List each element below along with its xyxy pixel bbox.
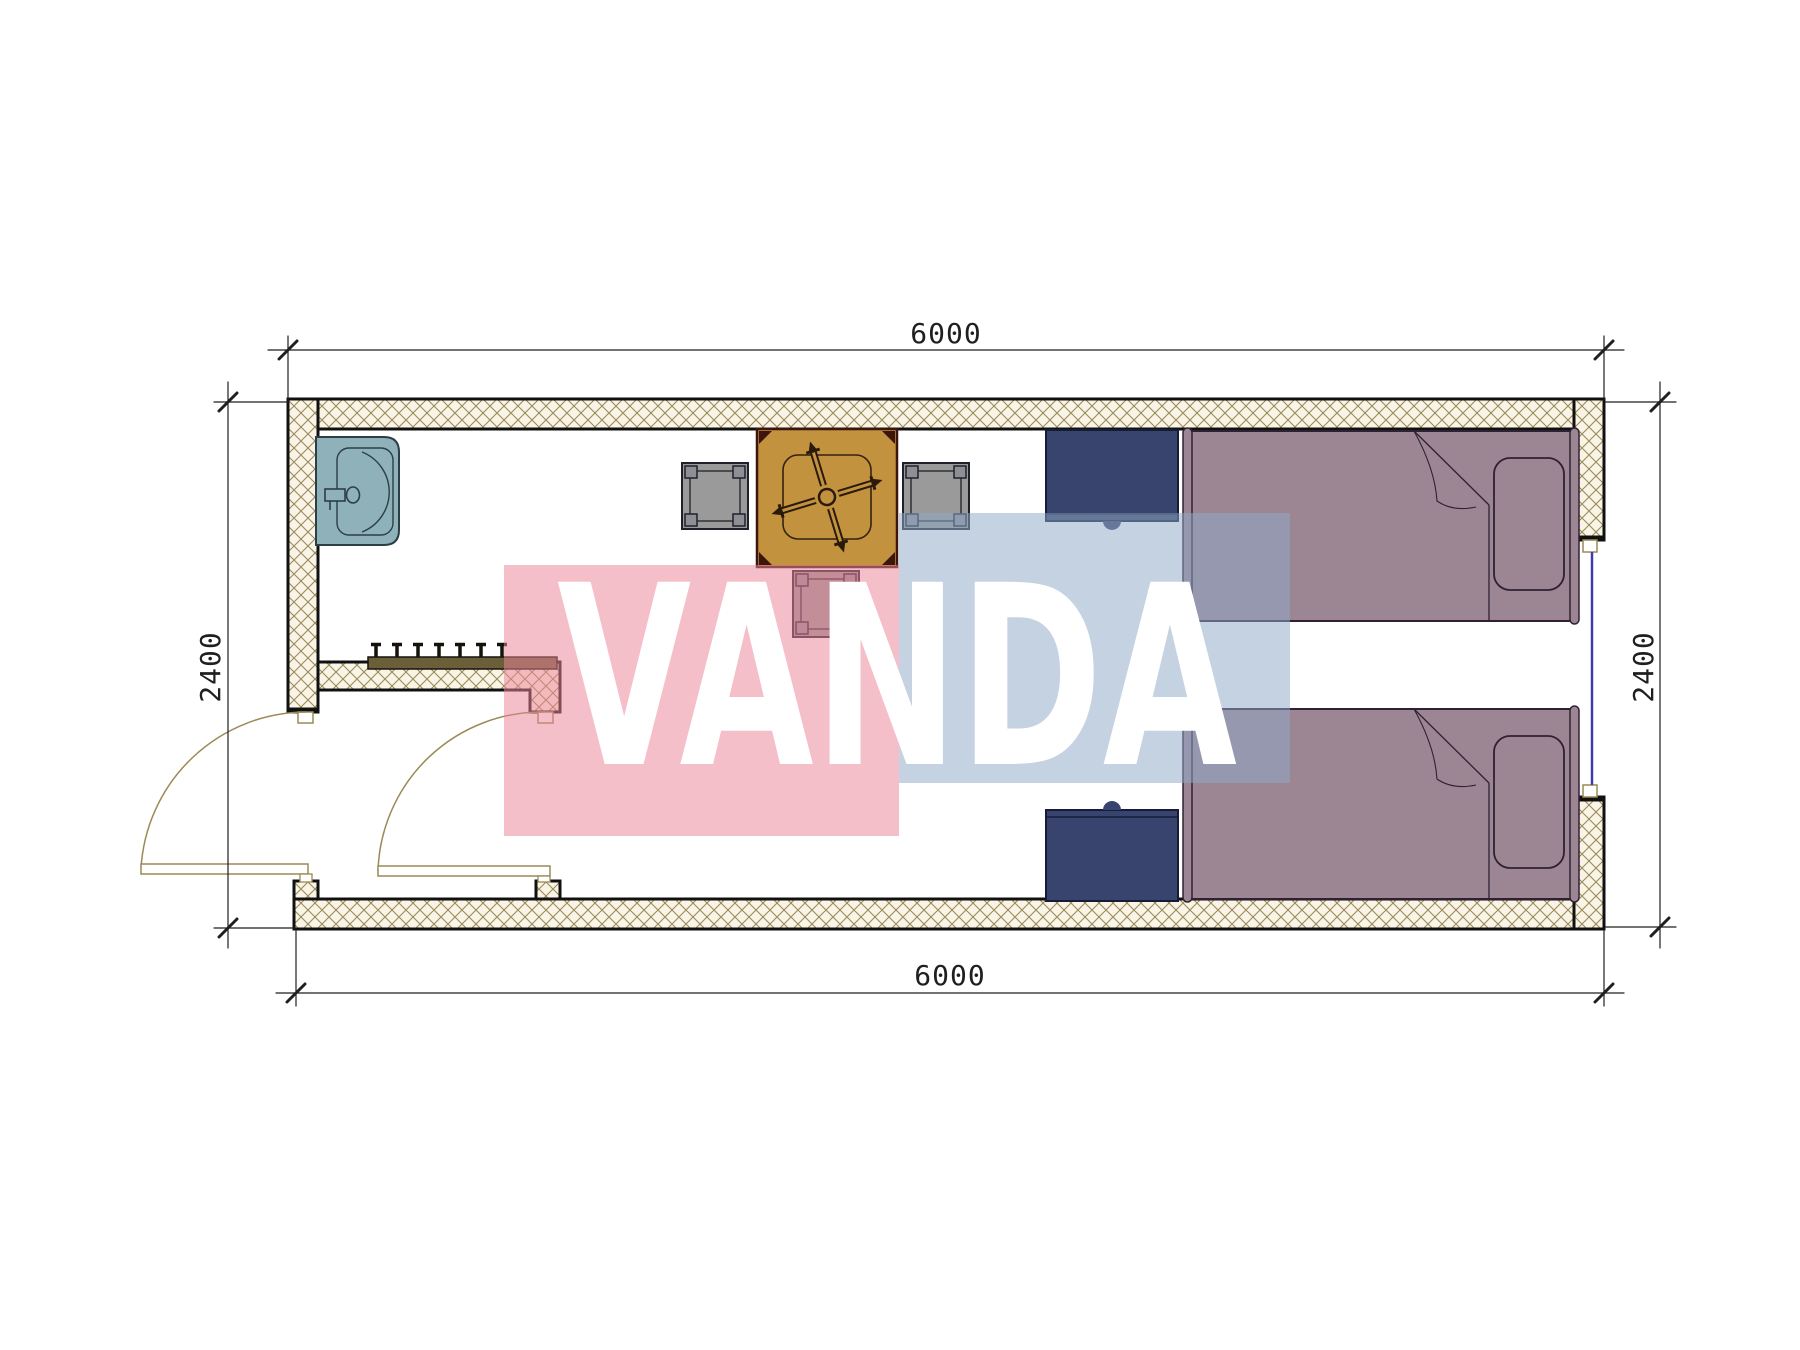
dim-label-bottom: 6000 (914, 959, 985, 992)
floor-plan-canvas: 6000 6000 2400 2400 VANDA (0, 0, 1800, 1350)
coat-hook-icon (476, 645, 486, 658)
door-jamb-block-mid (536, 881, 560, 899)
door-leaf (141, 864, 308, 874)
dim-label-top: 6000 (910, 317, 981, 350)
door-jamb-block-left (294, 881, 318, 899)
window-jamb (1583, 540, 1597, 552)
dimension-bottom: 6000 (276, 931, 1624, 1006)
wall-top (288, 399, 1604, 429)
entrance-door (141, 712, 313, 882)
door-swing-arc (141, 712, 306, 869)
coat-hook-icon (413, 645, 423, 658)
watermark: VANDA (504, 513, 1290, 836)
dim-label-left: 2400 (194, 631, 227, 702)
coat-hook-icon (392, 645, 402, 658)
watermark-text: VANDA (557, 532, 1237, 823)
coat-hook-icon (371, 645, 381, 658)
door-hinge-block (538, 876, 550, 882)
dimension-top: 6000 (268, 317, 1624, 399)
window-jamb (1583, 785, 1597, 797)
coat-hook-icon (455, 645, 465, 658)
dimension-left: 2400 (194, 382, 296, 948)
door-leaf (378, 866, 550, 876)
coat-hook-icon (434, 645, 444, 658)
chair-left (682, 463, 748, 529)
door-hinge-block (300, 874, 312, 882)
sink (316, 437, 399, 545)
door-jamb (298, 712, 313, 723)
dimension-right: 2400 (1606, 382, 1676, 948)
faucet-icon (325, 489, 345, 501)
dim-label-right: 2400 (1627, 631, 1660, 702)
window-right (1583, 540, 1597, 797)
faucet-knob (347, 487, 360, 503)
wall-left (288, 399, 318, 712)
wall-bottom (294, 899, 1604, 929)
